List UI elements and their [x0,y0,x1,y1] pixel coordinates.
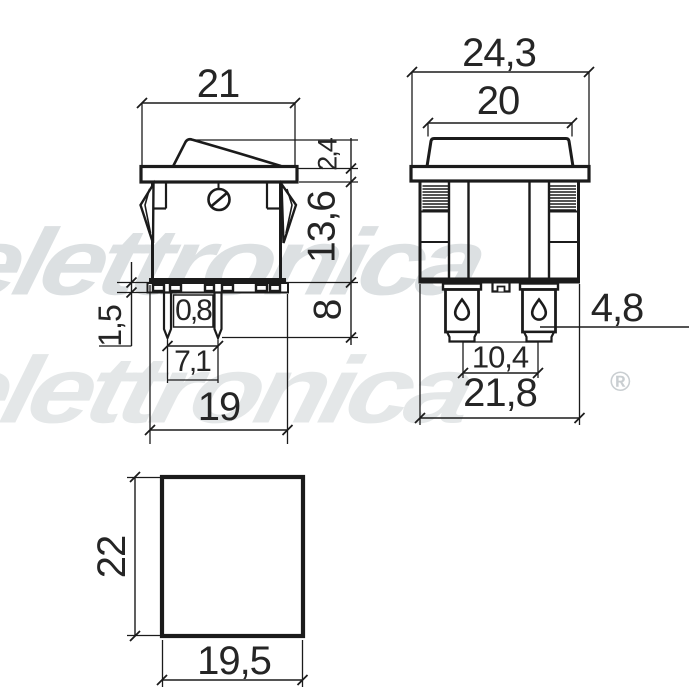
dim-label-cutout-width: 19,5 [197,641,271,681]
dim-label-side-top-width: 21 [197,64,240,104]
dim-label-side-bottom-width: 19 [198,387,241,427]
drawing-linework [0,0,700,700]
left-terminal [443,284,481,342]
dim-label-front-body-width: 21,8 [463,373,537,413]
dim-label-cutout-height: 22 [92,536,132,579]
dim-label-side-pin-thickness: 0,8 [175,296,211,326]
right-rib-block [550,186,576,210]
dim-label-front-flange-width: 24,3 [462,33,536,73]
dim-label-front-terminal-width: 4,8 [591,288,644,328]
right-terminal [520,284,558,342]
dim-label-side-pin-length: 8 [309,300,348,321]
dim-label-side-flange-thickness: 2,4 [315,139,342,171]
panel-cutout-linework [162,477,303,636]
side-view-linework [141,139,298,338]
technical-drawing-page: elettronica elettronica ® [0,0,700,700]
dim-label-front-terminal-spacing: 10,4 [472,342,528,373]
dim-label-side-plate-thickness: 1,5 [94,305,126,346]
dim-label-side-body-depth: 13,6 [303,191,342,263]
front-view-linework [411,139,589,342]
dim-label-front-rocker-width: 20 [477,81,520,121]
left-rib-block [423,186,449,210]
dim-label-side-pin-spacing: 7,1 [174,347,210,377]
